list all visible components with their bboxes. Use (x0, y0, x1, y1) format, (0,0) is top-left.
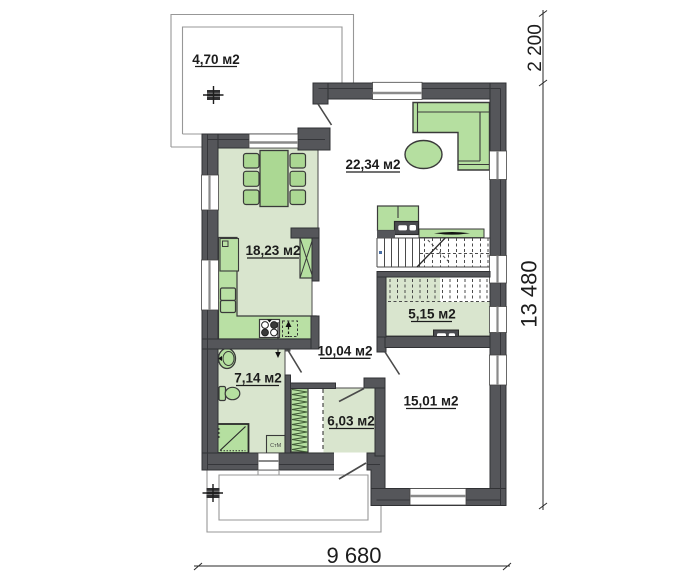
svg-text:10,04 м2: 10,04 м2 (317, 344, 372, 359)
svg-text:9 680: 9 680 (326, 543, 381, 568)
svg-text:2 200: 2 200 (525, 24, 546, 72)
svg-text:4,70 м2: 4,70 м2 (192, 52, 240, 67)
svg-text:5,15 м2: 5,15 м2 (408, 307, 456, 322)
svg-text:22,34 м2: 22,34 м2 (345, 157, 400, 172)
svg-text:15,01 м2: 15,01 м2 (403, 394, 458, 409)
svg-text:7,14 м2: 7,14 м2 (234, 371, 282, 386)
svg-text:6,03 м2: 6,03 м2 (327, 414, 375, 429)
svg-text:13 480: 13 480 (517, 260, 542, 327)
svg-text:СтМ: СтМ (270, 443, 281, 449)
svg-text:18,23 м2: 18,23 м2 (245, 243, 300, 258)
